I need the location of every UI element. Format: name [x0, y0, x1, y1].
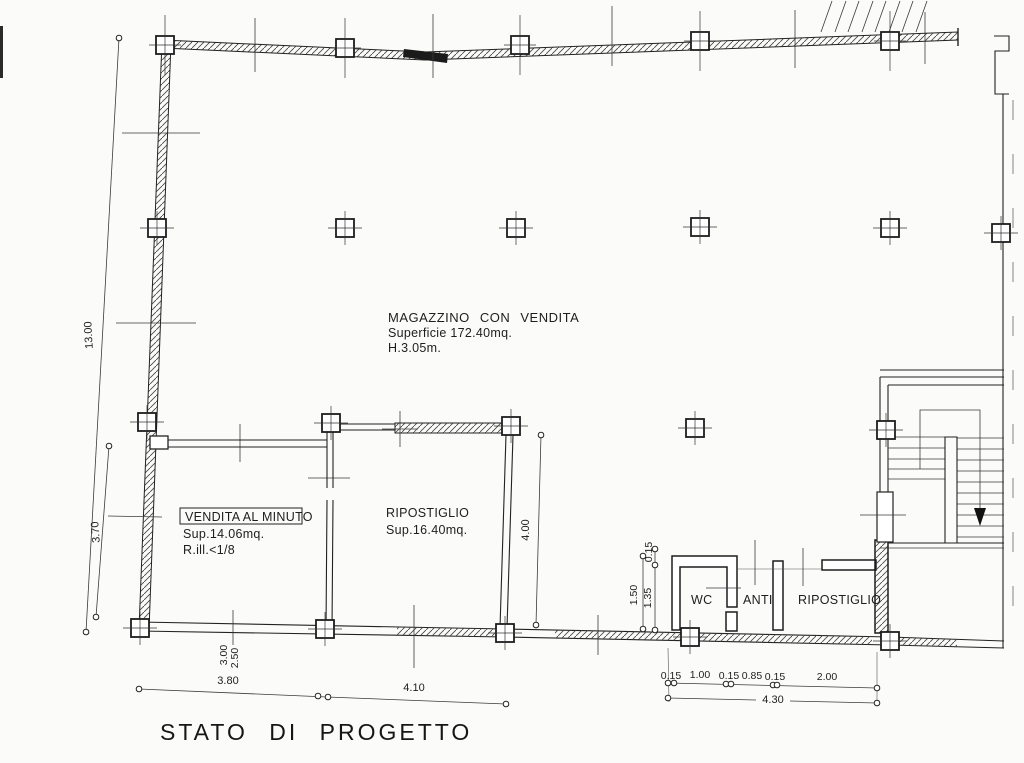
dimension-bottom-right: 0.15 1.00 0.15 0.85 0.15 2.00 4.30	[661, 648, 880, 706]
dim-bottom-a: 3.80	[217, 675, 238, 687]
dim-storage-height: 4.00	[520, 519, 532, 541]
dimension-bottom-left: 3.80 4.10 3.00 2.50	[136, 645, 509, 707]
anti-name: ANTI	[743, 593, 773, 607]
dim-seg-5: 0.15	[765, 671, 786, 683]
wc-name: WC	[691, 593, 712, 607]
drawing-title: STATO DI PROGETTO	[160, 719, 472, 745]
dim-seg-6: 2.00	[817, 671, 838, 683]
magazzino-height: H.3.05m.	[388, 341, 441, 355]
stair-down-arrow-icon	[974, 508, 986, 526]
dim-seg-3: 0.15	[719, 670, 740, 682]
floorplan-drawing: 13.00 3.70 4.00 0.15 1.50 1.35 3.80 4.10…	[0, 0, 1024, 763]
vendita-illumination: R.ill.<1/8	[183, 543, 235, 557]
roof-hatch-marks	[821, 1, 927, 32]
floorplan-page: 13.00 3.70 4.00 0.15 1.50 1.35 3.80 4.10…	[0, 0, 1024, 763]
dim-wc-offset: 0.15	[643, 542, 655, 563]
dim-wc-inner: 1.35	[642, 588, 654, 609]
dim-wc-outer: 1.50	[628, 585, 640, 606]
dim-bottom-b: 4.10	[403, 682, 424, 694]
dimension-left-total: 13.00	[82, 35, 122, 635]
wall-end-block	[150, 436, 168, 449]
ripostiglio-destra-name: RIPOSTIGLIO	[798, 593, 881, 607]
vendita-surface: Sup.14.06mq.	[183, 527, 264, 541]
dim-seg-1: 0.15	[661, 670, 682, 682]
dim-left-total: 13.00	[82, 321, 95, 349]
vendita-name: VENDITA AL MINUTO	[185, 510, 313, 524]
dim-left-lower: 3.70	[89, 521, 102, 543]
stairwell	[860, 370, 1004, 548]
dimension-left-lower: 3.70	[89, 443, 112, 620]
dimension-wc-group: 0.15 1.50 1.35	[628, 542, 658, 633]
ripostiglio-centro-name: RIPOSTIGLIO	[386, 506, 469, 520]
magazzino-surface: Superficie 172.40mq.	[388, 326, 512, 340]
dim-seg-2: 1.00	[690, 669, 711, 681]
dim-bottom-v2: 2.50	[229, 648, 241, 669]
stair-direction-line	[920, 410, 980, 512]
dim-seg-total: 4.30	[762, 694, 783, 706]
dimension-storage-height: 4.00	[520, 432, 544, 628]
ripostiglio-centro-surface: Sup.16.40mq.	[386, 523, 467, 537]
magazzino-name: MAGAZZINO CON VENDITA	[388, 310, 579, 325]
wc-suite-walls	[672, 540, 888, 633]
dim-seg-4: 0.85	[742, 670, 763, 682]
stair-treads	[888, 437, 1004, 537]
